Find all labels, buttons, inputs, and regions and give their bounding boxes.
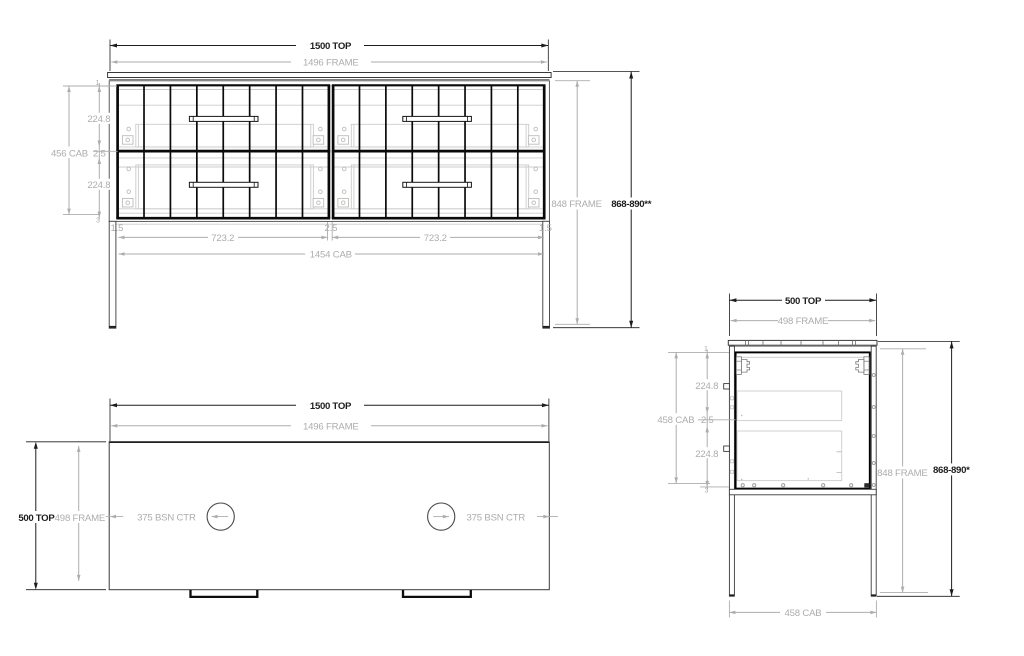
- svg-text:723.2: 723.2: [211, 233, 234, 244]
- svg-text:868-890**: 868-890**: [611, 199, 652, 210]
- svg-text:1500 TOP: 1500 TOP: [310, 41, 352, 52]
- svg-text:1: 1: [704, 346, 708, 353]
- svg-text:498 FRAME: 498 FRAME: [55, 513, 105, 524]
- svg-text:1496 FRAME: 1496 FRAME: [303, 421, 359, 432]
- svg-text:848 FRAME: 848 FRAME: [877, 468, 927, 479]
- svg-text:1.5: 1.5: [539, 223, 552, 234]
- svg-text:456 CAB: 456 CAB: [51, 148, 88, 159]
- svg-text:224.8: 224.8: [87, 114, 110, 125]
- svg-text:458 CAB: 458 CAB: [657, 415, 694, 426]
- svg-text:500 TOP: 500 TOP: [18, 513, 55, 524]
- svg-text:1454 CAB: 1454 CAB: [310, 250, 352, 261]
- svg-text:224.8: 224.8: [695, 449, 718, 460]
- svg-text:723.2: 723.2: [424, 233, 447, 244]
- svg-text:375 BSN CTR: 375 BSN CTR: [467, 512, 526, 523]
- svg-text:2.5: 2.5: [93, 148, 106, 159]
- svg-text:1500 TOP: 1500 TOP: [310, 401, 352, 412]
- svg-text:1.5: 1.5: [111, 223, 124, 234]
- svg-text:1496 FRAME: 1496 FRAME: [303, 58, 359, 69]
- svg-text:224.8: 224.8: [695, 381, 718, 392]
- svg-text:848 FRAME: 848 FRAME: [551, 199, 601, 210]
- svg-text:2.5: 2.5: [701, 415, 714, 426]
- svg-text:3: 3: [96, 218, 100, 225]
- svg-text:1: 1: [96, 80, 100, 87]
- svg-text:458 CAB: 458 CAB: [785, 608, 822, 619]
- svg-text:500 TOP: 500 TOP: [785, 296, 822, 307]
- svg-text:375 BSN CTR: 375 BSN CTR: [137, 512, 196, 523]
- svg-text:498 FRAME: 498 FRAME: [778, 316, 828, 327]
- svg-text:3: 3: [705, 487, 709, 494]
- svg-text:224.8: 224.8: [87, 180, 110, 191]
- svg-text:868-890*: 868-890*: [933, 465, 970, 476]
- svg-text:2.5: 2.5: [325, 223, 338, 234]
